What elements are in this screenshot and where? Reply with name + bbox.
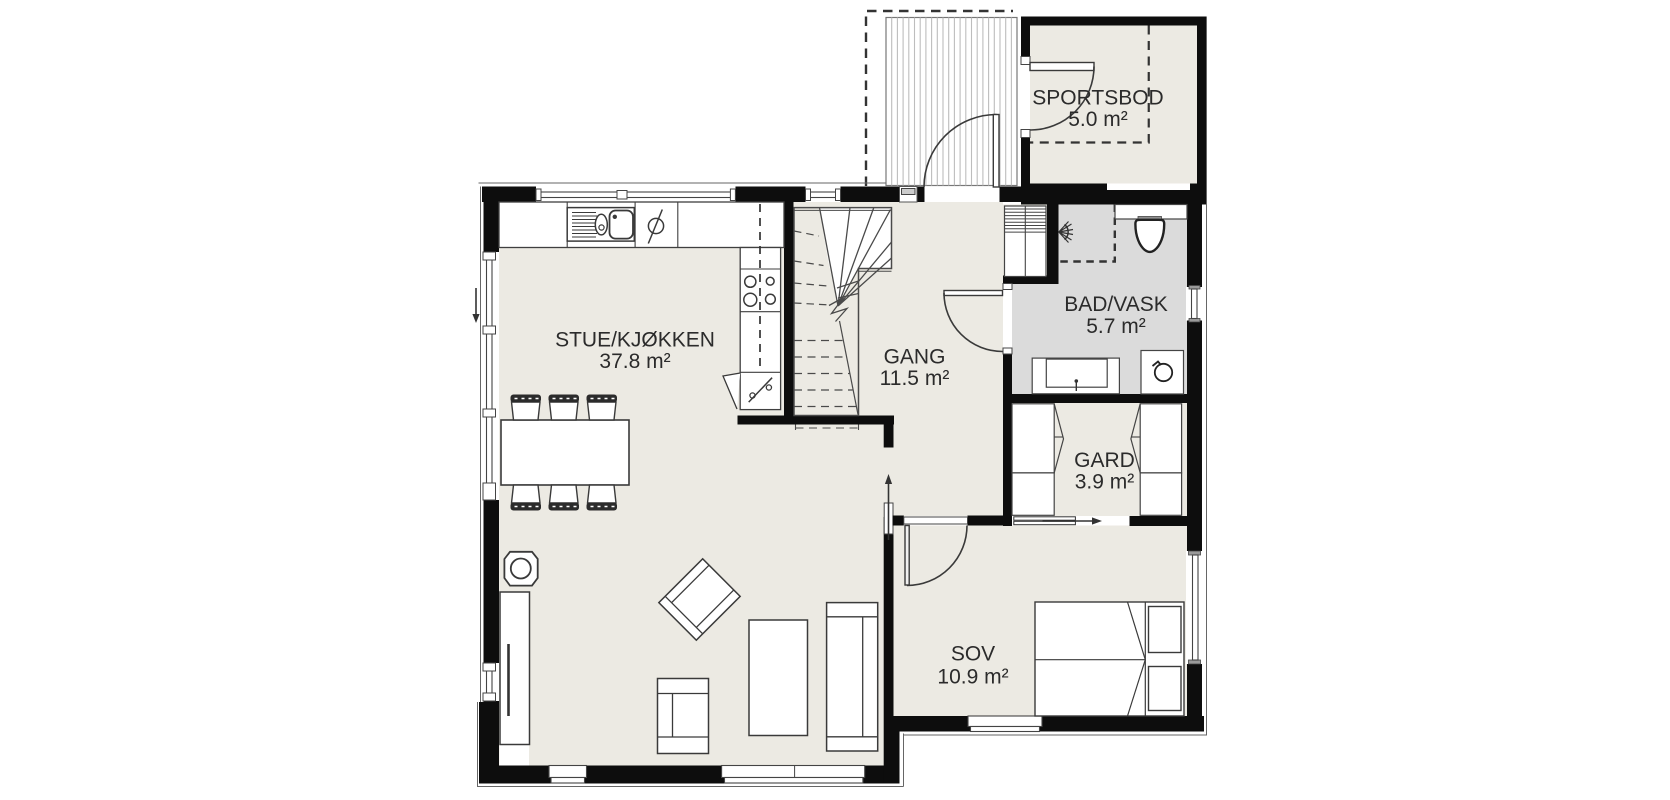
svg-text:37.8 m²: 37.8 m² bbox=[599, 350, 670, 373]
svg-text:10.9 m²: 10.9 m² bbox=[937, 666, 1008, 689]
svg-text:GANG: GANG bbox=[884, 345, 946, 368]
svg-text:3.9 m²: 3.9 m² bbox=[1075, 471, 1135, 494]
svg-text:BAD/VASK: BAD/VASK bbox=[1064, 293, 1167, 316]
svg-text:5.0 m²: 5.0 m² bbox=[1068, 108, 1128, 131]
svg-text:SPORTSBOD: SPORTSBOD bbox=[1032, 86, 1163, 109]
svg-text:GARD: GARD bbox=[1074, 449, 1135, 472]
svg-text:5.7 m²: 5.7 m² bbox=[1086, 315, 1146, 338]
svg-text:SOV: SOV bbox=[951, 642, 995, 665]
svg-text:STUE/KJØKKEN: STUE/KJØKKEN bbox=[555, 329, 715, 352]
svg-text:11.5 m²: 11.5 m² bbox=[880, 367, 950, 390]
